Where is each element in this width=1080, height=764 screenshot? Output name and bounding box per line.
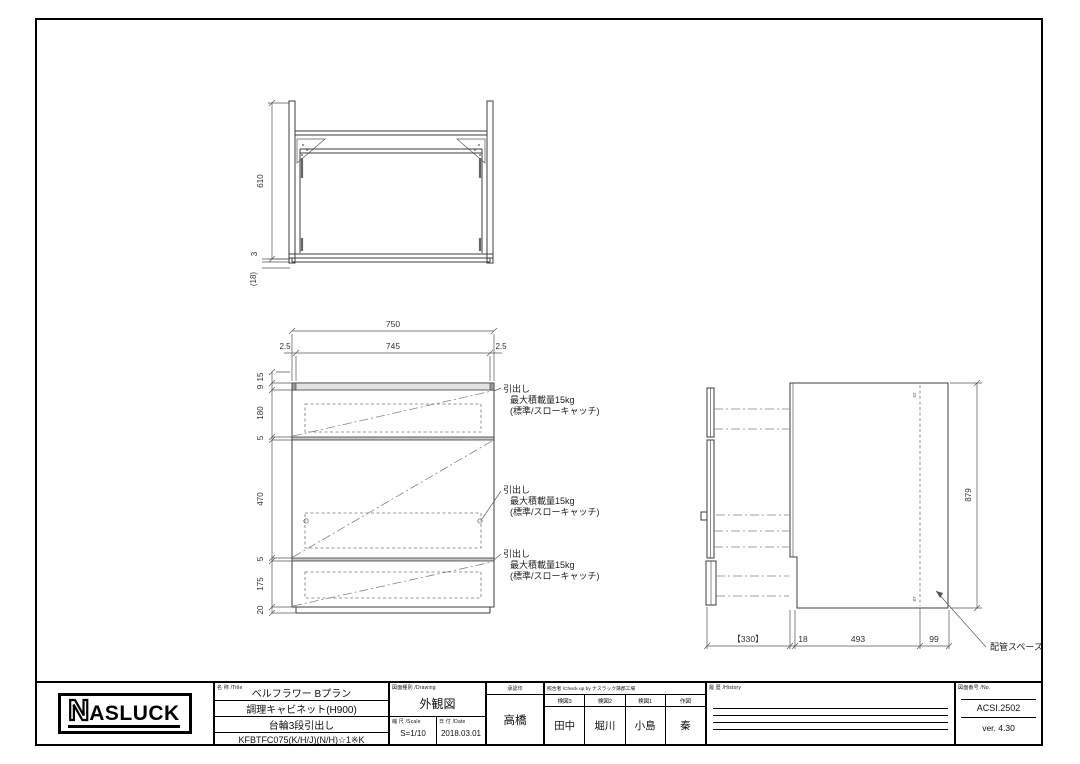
dim-top-15: 15 [256,372,265,381]
front-view-drawing: 750 745 2.5 2.5 15 [256,319,600,616]
dim-gap2-5: 5 [256,556,265,561]
drawer2-note-line2: 最大積載量15kg [510,495,575,506]
dim-gap1-5: 5 [256,435,265,440]
drawing-sheet: NASLUCK 名 称 /Title ベルフラワー Bプラン 調理キャビネット(… [0,0,1080,764]
dim-edge-right: 2.5 [495,342,507,351]
pipe-tick-top: 52 [912,392,917,398]
dim-depth-493: 493 [851,634,865,644]
pipe-space-note: 配管スペース [990,641,1043,652]
dim-drawer3-175: 175 [256,577,265,591]
drawer2-note-line3: (標準/スローキャッチ) [510,506,600,517]
dim-drawer2-470: 470 [256,492,265,506]
drawing-views: 610 3 (18) 750 745 2.5 2.5 [0,0,1080,764]
drawer3-note-line3: (標準/スローキャッチ) [510,570,600,581]
dim-depth-610: 610 [256,174,265,188]
side-view-drawing: 52 87 879 【330】 18 493 99 配管スペース [701,380,1043,652]
dim-width-750: 750 [386,319,400,329]
dim-pipe-99: 99 [929,634,939,644]
dim-gap-18: 18 [798,634,808,644]
drawer2-note-line1: 引出し [503,484,530,495]
dim-inner-745: 745 [386,341,400,351]
dim-pullout-330: 【330】 [732,634,763,644]
top-view-drawing: 610 3 (18) [249,100,493,286]
drawer1-note-line3: (標準/スローキャッチ) [510,405,600,416]
dim-front-3: 3 [250,251,259,256]
dim-overhang-18: (18) [249,272,258,287]
dim-height-879: 879 [964,488,973,502]
drawer3-note-line2: 最大積載量15kg [510,559,575,570]
drawer3-note-line1: 引出し [503,548,530,559]
drawer1-note-line2: 最大積載量15kg [510,394,575,405]
dim-base-20: 20 [256,605,265,614]
dim-drawer1-180: 180 [256,406,265,420]
dim-top-9: 9 [256,384,265,389]
dim-edge-left: 2.5 [279,342,291,351]
drawer1-note-line1: 引出し [503,383,530,394]
pipe-tick-bottom: 87 [912,596,917,602]
